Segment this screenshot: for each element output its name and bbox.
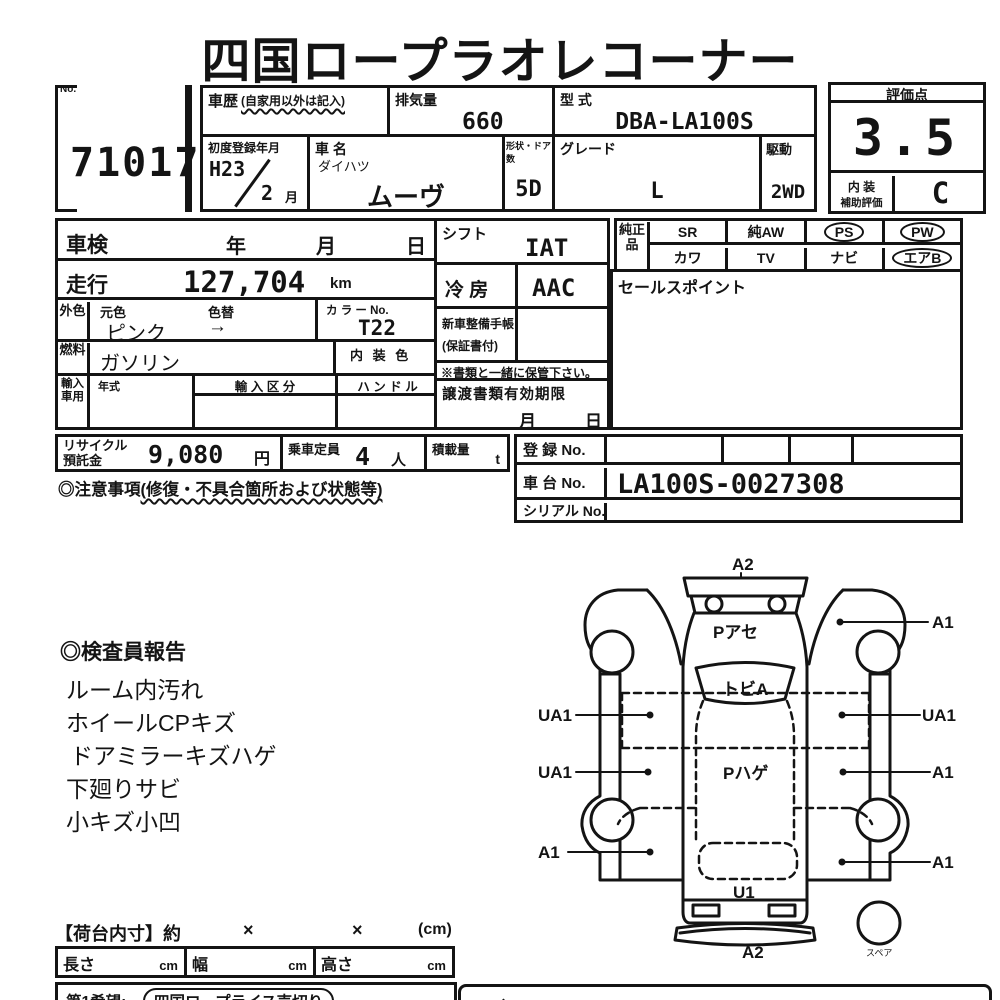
fuel-side-label: 燃料 (58, 343, 90, 374)
chassis-no-label: 車 台 No. (523, 475, 586, 492)
inspector-item-4: 下廻りサビ (66, 770, 181, 804)
first-reg-label: 初度登録年月 (208, 139, 280, 156)
capacity-label: 乗車定員 (288, 439, 340, 458)
dot-ua1-left-lower (645, 769, 652, 776)
reg-div-3 (851, 437, 854, 465)
lot-number: 71017 (70, 140, 200, 186)
cargo-title: 【荷台内寸】約 (55, 920, 181, 946)
genuine-part-navi-label: ナビ (830, 250, 858, 266)
rear-window-dashed (699, 843, 797, 879)
reg-div-1 (721, 437, 724, 465)
grade-value: L (555, 179, 759, 204)
first-reg-cell: 初度登録年月 H23 2 月 (200, 134, 310, 212)
displacement-cell: 排気量 660 (387, 85, 555, 137)
shift-label: シフト (442, 223, 487, 244)
load-unit: t (495, 451, 500, 467)
fuel-value: ガソリン (100, 347, 180, 376)
genuine-part-ps: PS (807, 221, 885, 242)
shaken-label: 車検 (66, 229, 108, 259)
right-tail-light (769, 905, 795, 916)
lot-no-label: No. (60, 84, 76, 95)
model-code-cell: 型 式 DBA-LA100S (552, 85, 817, 137)
front-door-dashed-rect (622, 693, 869, 748)
genuine-part-navi: ナビ (807, 248, 885, 269)
serial-label-divider (604, 503, 607, 520)
recycle-cell: リサイクル 預託金 9,080 円 (55, 434, 283, 472)
cargo-times-2: × (352, 920, 363, 941)
lot-divider-bar (185, 85, 192, 212)
right-headlight (769, 596, 785, 612)
lot-bracket-left (55, 85, 58, 212)
spare-tire-icon (858, 902, 900, 944)
service-book-box: 新車整備手帳 (保証書付) (434, 306, 610, 363)
displacement-label: 排気量 (395, 90, 437, 110)
genuine-parts-side-label: 純正品 (617, 222, 650, 270)
import-side-label: 輸入車用 (58, 376, 90, 427)
page-title: 四国ロープラオレコーナー (185, 22, 815, 93)
rear-bumper (675, 924, 815, 946)
cargo-height-unit: cm (427, 958, 446, 973)
transfer-docs-label: 譲渡書類有効期限 (442, 383, 566, 404)
label-spare: スペア (866, 948, 892, 958)
history-label: 車歴 (208, 90, 238, 111)
recycle-value: 9,080 (148, 440, 223, 469)
genuine-part-sr: SR (650, 221, 728, 242)
genuine-part-pw: PW (885, 221, 960, 242)
label-u1: U1 (733, 883, 755, 902)
label-a1-right-mid: A1 (932, 763, 954, 782)
label-ua1-left-lower: UA1 (538, 763, 572, 782)
drive-value: 2WD (762, 181, 814, 203)
left-panel-strip (600, 674, 620, 880)
right-rear-wheel (857, 799, 899, 841)
chassis-label-divider (604, 468, 607, 500)
right-panel-pillar-edge (809, 590, 843, 664)
model-code-value: DBA-LA100S (555, 109, 814, 135)
recycle-label-2: 預託金 (63, 454, 127, 469)
rating-label: 評価点 (886, 87, 928, 103)
inspector-item-5: 小キズ小凹 (66, 803, 181, 837)
import-class-label: 輸 入 区 分 (235, 380, 295, 394)
inspector-item-3: ドアミラーキズハゲ (70, 737, 277, 771)
genuine-part-airbag-label: エアB (892, 248, 952, 268)
interior-grade: C (932, 176, 949, 210)
left-tail-light (693, 905, 719, 916)
transfer-docs-box: 譲渡書類有効期限 月 日 (434, 378, 610, 430)
right-panel-strip (870, 674, 890, 880)
interior-label-1: 内 装 (831, 178, 892, 195)
cargo-width-label: 幅 (192, 951, 208, 975)
year-type-label: 年式 (98, 378, 120, 394)
reg-no-label: 登 録 No. (523, 442, 586, 459)
cargo-length-label: 長さ (63, 951, 95, 975)
label-p-ase: Pアセ (713, 623, 758, 642)
genuine-part-sr-label: SR (678, 224, 697, 240)
aircon-box: 冷 房 AAC (434, 262, 610, 309)
cargo-times-1: × (243, 920, 254, 941)
lot-bracket-bottom (55, 209, 77, 212)
interior-color-label: 内 装 色 (350, 345, 411, 364)
history-cell: 車歴 (自家用以外は記入) (200, 85, 390, 137)
first-reg-month: 2 (261, 181, 273, 205)
service-book-divider (515, 309, 518, 360)
recycle-label-1: リサイクル (63, 439, 127, 454)
first-wish-value: 四国ロープライス売切り (143, 988, 334, 1000)
inspector-report-title: ◎検査員報告 (60, 636, 186, 666)
mileage-label: 走行 (66, 269, 108, 299)
dot-a1-right-mid (840, 769, 847, 776)
maker-name: ダイハツ (318, 156, 370, 175)
mileage-row: 走行 127,704 km (55, 258, 437, 300)
genuine-part-aw-label: 純AW (748, 224, 785, 240)
reg-div-2 (788, 437, 791, 465)
mileage-unit: km (330, 275, 352, 292)
cargo-height-cell: 高さ cm (313, 946, 455, 978)
capacity-value: 4 (355, 442, 370, 471)
genuine-part-tv: TV (728, 248, 806, 269)
shaken-year: 年 (226, 230, 246, 259)
body-doors-cell: 形状・ドア数 5D (502, 134, 555, 212)
dot-a1-top-right (837, 619, 844, 626)
genuine-part-airbag: エアB (885, 248, 960, 269)
dot-a1-right-bottom (839, 859, 846, 866)
color-no-value: T22 (318, 316, 436, 340)
shaken-day: 日 (406, 230, 426, 259)
inspector-item-1: ルーム内汚れ (66, 671, 203, 705)
color-row: 外色 元色 色替 ピンク → カ ラ ー No. T22 (55, 297, 437, 342)
roof-dashed-right (787, 701, 794, 841)
caution-note: ◎注意事項(修復・不具合箇所および状態等) (58, 476, 383, 500)
color-arrow: → (208, 316, 227, 338)
car-name-value: ムーヴ (310, 177, 502, 214)
auction-sheet: 四国ロープラオレコーナー No. 71017 車歴 (自家用以外は記入) 排気量… (0, 0, 1000, 1000)
label-p-hage: Pハゲ (723, 763, 768, 783)
shaken-month: 月 (316, 230, 336, 259)
front-bumper (684, 578, 807, 596)
first-reg-month-suffix: 月 (285, 187, 298, 206)
cargo-length-unit: cm (159, 958, 178, 973)
first-wish-label: 第1希望: (66, 990, 126, 1000)
dot-ua1-left-upper (647, 712, 654, 719)
cargo-width-unit: cm (288, 958, 307, 973)
body-doors-value: 5D (505, 177, 552, 202)
bottom-right-fragment: ◆日 (495, 994, 529, 1000)
genuine-part-ps-label: PS (824, 222, 865, 242)
interior-color-divider (333, 342, 336, 373)
grade-label: グレード (560, 139, 616, 159)
shaken-row: 車検 年 月 日 (55, 218, 437, 261)
roof-dashed-left (696, 701, 703, 841)
genuine-part-kawa-label: カワ (674, 250, 702, 266)
displacement-value: 660 (462, 109, 504, 135)
shift-box: シフト IAT (434, 218, 610, 265)
label-a2-bottom: A2 (742, 943, 764, 962)
aircon-label: 冷 房 (445, 275, 488, 302)
car-name-cell: 車 名 ダイハツ ムーヴ (307, 134, 505, 212)
handle-label: ハ ン ド ル (357, 380, 417, 394)
service-book-label: 新車整備手帳 (442, 315, 514, 332)
car-damage-diagram: A2 Pアセ A1 トビA UA1 UA1 UA1 Pハゲ A1 A1 A1 U… (530, 552, 1000, 967)
registration-table: 登 録 No. 車 台 No. LA100S-0027308 シリアル No. (514, 434, 963, 523)
aircon-value: AAC (532, 274, 575, 302)
transfer-day: 日 (585, 407, 602, 432)
label-a1-left-bottom: A1 (538, 843, 560, 862)
rear-bumper-inner-line (680, 929, 810, 934)
first-reg-year: H23 (209, 157, 245, 181)
left-panel-pillar-edge (647, 590, 681, 664)
left-headlight (706, 596, 722, 612)
label-a1-top-right: A1 (932, 613, 954, 632)
bottom-right-box: ◆日 (458, 984, 992, 1000)
first-wish-row: 第1希望: 四国ロープライス売切り (55, 982, 457, 1000)
label-ua1-left-upper: UA1 (538, 706, 572, 725)
interior-label-2: 補助評価 (831, 195, 892, 210)
capacity-cell: 乗車定員 4 人 (280, 434, 427, 472)
label-tobi-a: トビA (722, 680, 768, 699)
cargo-width-cell: 幅 cm (184, 946, 316, 978)
dot-ua1-right (839, 712, 846, 719)
reg-label-divider (604, 437, 607, 465)
genuine-part-tv-label: TV (757, 250, 775, 266)
cargo-length-cell: 長さ cm (55, 946, 187, 978)
genuine-part-pw-label: PW (900, 222, 945, 242)
import-row: 輸入車用 年式 輸 入 区 分 ハ ン ド ル (55, 373, 437, 430)
left-front-wheel (591, 631, 633, 673)
serial-no-label: シリアル No. (523, 503, 605, 519)
rating-score: 3.5 (853, 109, 961, 167)
genuine-parts-table: 純正品 SR 純AW PS PW カワ TV ナビ エアB (614, 218, 963, 272)
model-code-label: 型 式 (560, 90, 592, 110)
grade-cell: グレード L (552, 134, 762, 212)
caution-prefix: ◎注意事項 (58, 481, 141, 499)
cargo-height-label: 高さ (321, 951, 353, 975)
service-book-note: (保証書付) (442, 337, 498, 354)
caution-detail: (修復・不具合箇所および状態等) (141, 481, 383, 499)
history-note: (自家用以外は記入) (241, 92, 345, 109)
fuel-row: 燃料 ガソリン 内 装 色 (55, 339, 437, 376)
recycle-unit: 円 (254, 445, 270, 469)
right-front-wheel (857, 631, 899, 673)
sales-point-label: セールスポイント (618, 274, 746, 298)
label-a1-right-bottom: A1 (932, 853, 954, 872)
chassis-no-value: LA100S-0027308 (617, 469, 845, 500)
label-a2-top: A2 (732, 555, 754, 574)
drive-cell: 駆動 2WD (759, 134, 817, 212)
genuine-part-aw: 純AW (728, 221, 806, 242)
left-rear-wheel (591, 799, 633, 841)
load-cell: 積載量 t (424, 434, 510, 472)
drive-label: 駆動 (766, 139, 792, 158)
aircon-divider (515, 265, 518, 306)
capacity-unit: 人 (391, 449, 406, 470)
body-doors-label: 形状・ドア数 (506, 139, 553, 165)
ext-color-side-label: 外色 (58, 302, 90, 341)
load-label: 積載量 (432, 439, 470, 458)
genuine-part-kawa: カワ (650, 248, 728, 269)
cargo-unit: (cm) (418, 921, 452, 939)
shift-value: IAT (525, 234, 568, 262)
label-ua1-right: UA1 (922, 706, 956, 725)
transfer-month: 月 (519, 407, 536, 432)
dot-a1-left-bottom (647, 849, 654, 856)
mileage-value: 127,704 (183, 265, 305, 299)
inspector-item-2: ホイールCPキズ (66, 704, 236, 738)
sales-point-box: セールスポイント (610, 269, 963, 430)
rating-box: 評価点 3.5 内 装 補助評価 C (828, 82, 986, 214)
